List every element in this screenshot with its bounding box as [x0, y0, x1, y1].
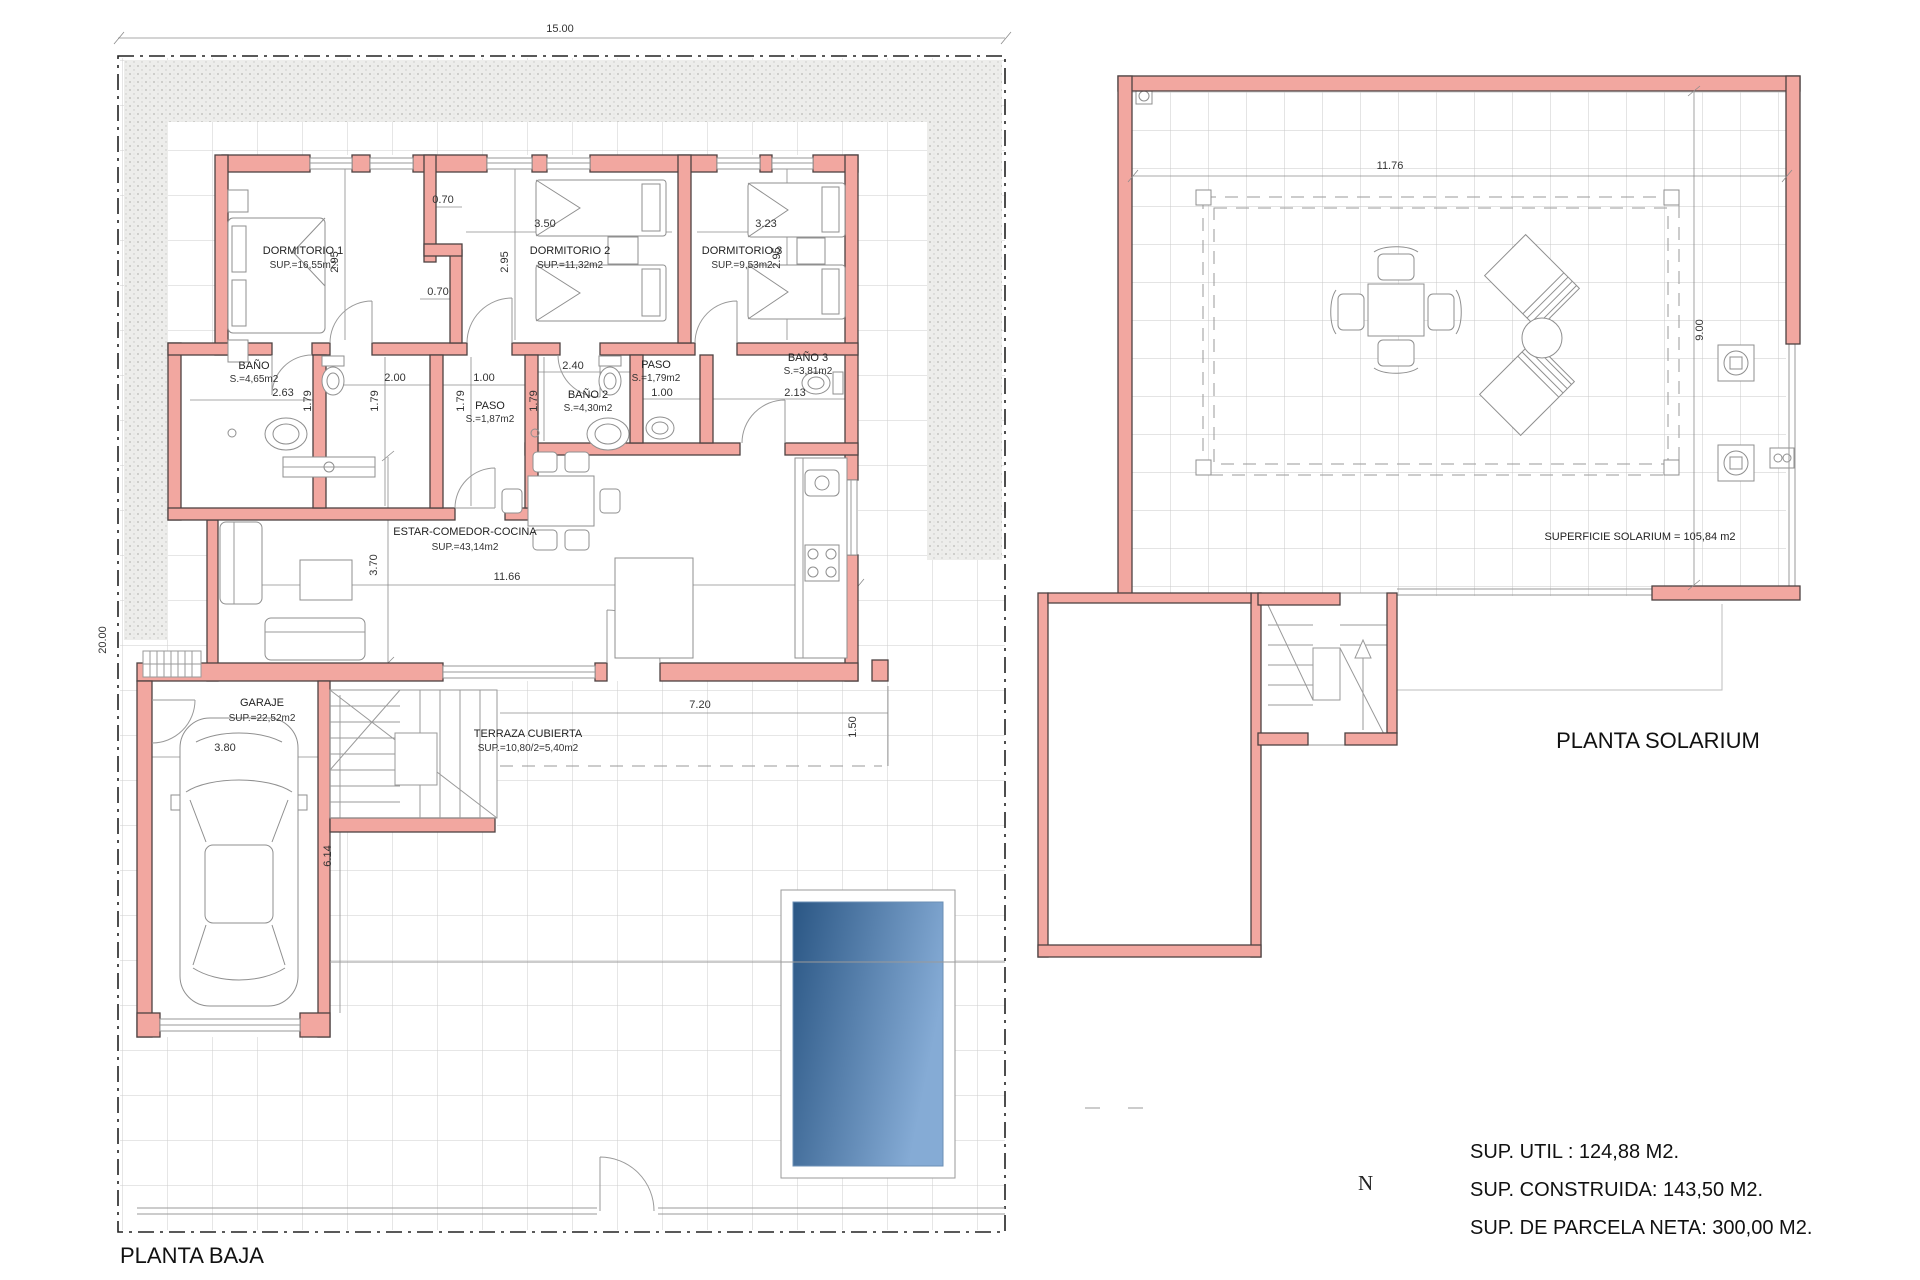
room-area-bano2: S.=4,30m2 [564, 403, 613, 414]
dim-armario-bottom: 0.70 [427, 286, 448, 298]
pool [781, 890, 955, 1178]
room-label-garaje: GARAJE [240, 697, 284, 709]
dim-terraza-depth: 1.50 [847, 716, 859, 737]
room-label-estar: ESTAR-COMEDOR-COCINA [393, 526, 537, 538]
gravel-band-left [124, 122, 168, 640]
summary-sup-util: SUP. UTIL : 124,88 M2. [1470, 1141, 1679, 1163]
dim-dorm3-depth: 2.95 [771, 247, 783, 268]
dim-dorm1-depth: 2.95 [329, 251, 341, 272]
room-area-garaje: SUP.=22,52m2 [229, 713, 296, 724]
dim-bano1-width: 2.63 [272, 387, 293, 399]
dim-dorm2-depth: 2.95 [499, 251, 511, 272]
vent-grille [143, 651, 201, 677]
dim-garaje-depth: 6.14 [322, 845, 334, 866]
dim-parcel-width: 15.00 [546, 23, 574, 35]
dim-paso2-door: 1.00 [651, 387, 672, 399]
gravel-band-top [124, 60, 1002, 122]
dim-lavadero-width: 2.00 [384, 372, 405, 384]
dim-garaje-width: 3.80 [214, 742, 235, 754]
dim-bano2-width: 2.40 [562, 360, 583, 372]
summary-sup-construida: SUP. CONSTRUIDA: 143,50 M2. [1470, 1179, 1763, 1201]
dim-bano3-width: 2.13 [784, 387, 805, 399]
solarium-tiles [1132, 92, 1786, 596]
plan-drawing: DORMITORIO 1 SUP.=16,55m2 DORMITORIO 2 S… [0, 0, 1920, 1280]
dim-band4: 1.79 [528, 390, 540, 411]
gravel-band-right [927, 122, 1002, 560]
room-area-terraza: SUP.=10,80/2=5,40m2 [478, 743, 579, 754]
room-area-dorm2: SUP.=11,32m2 [537, 260, 604, 271]
room-label-bano3: BAÑO 3 [788, 351, 828, 364]
planta-solarium-plan: 11.76 9.00 SUPERFICIE SOLARIUM = 105,84 … [1038, 76, 1800, 957]
room-label-dorm2: DORMITORIO 2 [530, 245, 610, 257]
dim-dorm3-width: 3.23 [755, 218, 776, 230]
room-area-paso1: S.=1,87m2 [466, 414, 515, 425]
room-area-bano3: S.=3,81m2 [784, 366, 833, 377]
dim-estar-depth: 3.70 [368, 554, 380, 575]
room-area-estar: SUP.=43,14m2 [432, 542, 499, 553]
floor-plan-sheet: DORMITORIO 1 SUP.=16,55m2 DORMITORIO 2 S… [0, 0, 1920, 1280]
summary-sup-parcela: SUP. DE PARCELA NETA: 300,00 M2. [1470, 1217, 1812, 1239]
dim-parcel-depth: 20.00 [97, 626, 109, 654]
dim-terraza-width: 7.20 [689, 699, 710, 711]
dim-paso1-door: 1.00 [473, 372, 494, 384]
solarium-surface-label: SUPERFICIE SOLARIUM = 105,84 m2 [1544, 531, 1735, 543]
dim-estar-width: 11.66 [494, 571, 521, 583]
dim-band2: 1.79 [369, 390, 381, 411]
room-label-bano2: BAÑO 2 [568, 388, 608, 401]
car [171, 718, 307, 1006]
room-area-dorm1: SUP.=16,55m2 [270, 260, 337, 271]
room-label-terraza: TERRAZA CUBIERTA [474, 728, 583, 740]
dim-solarium-width: 11.76 [1377, 160, 1404, 172]
room-area-paso2: S.=1,79m2 [632, 373, 681, 384]
dim-solarium-depth: 9.00 [1694, 319, 1706, 340]
room-label-paso1: PASO [475, 400, 505, 412]
title-planta-solarium: PLANTA SOLARIUM [1556, 728, 1760, 753]
room-area-dorm3: SUP.=9,53m2 [711, 260, 773, 271]
dim-armario-top: 0.70 [432, 194, 453, 206]
dim-band1: 1.79 [302, 390, 314, 411]
annex-floor [1038, 593, 1261, 957]
dim-band3: 1.79 [455, 390, 467, 411]
dim-dorm2-width: 3.50 [534, 218, 555, 230]
room-area-bano1: S.=4,65m2 [230, 374, 279, 385]
room-label-bano1: BAÑO [238, 359, 270, 372]
planta-baja-plan: DORMITORIO 1 SUP.=16,55m2 DORMITORIO 2 S… [97, 23, 1143, 1232]
title-planta-baja: PLANTA BAJA [120, 1243, 264, 1268]
room-label-paso2: PASO [641, 359, 671, 371]
north-indicator: N [1358, 1171, 1373, 1195]
